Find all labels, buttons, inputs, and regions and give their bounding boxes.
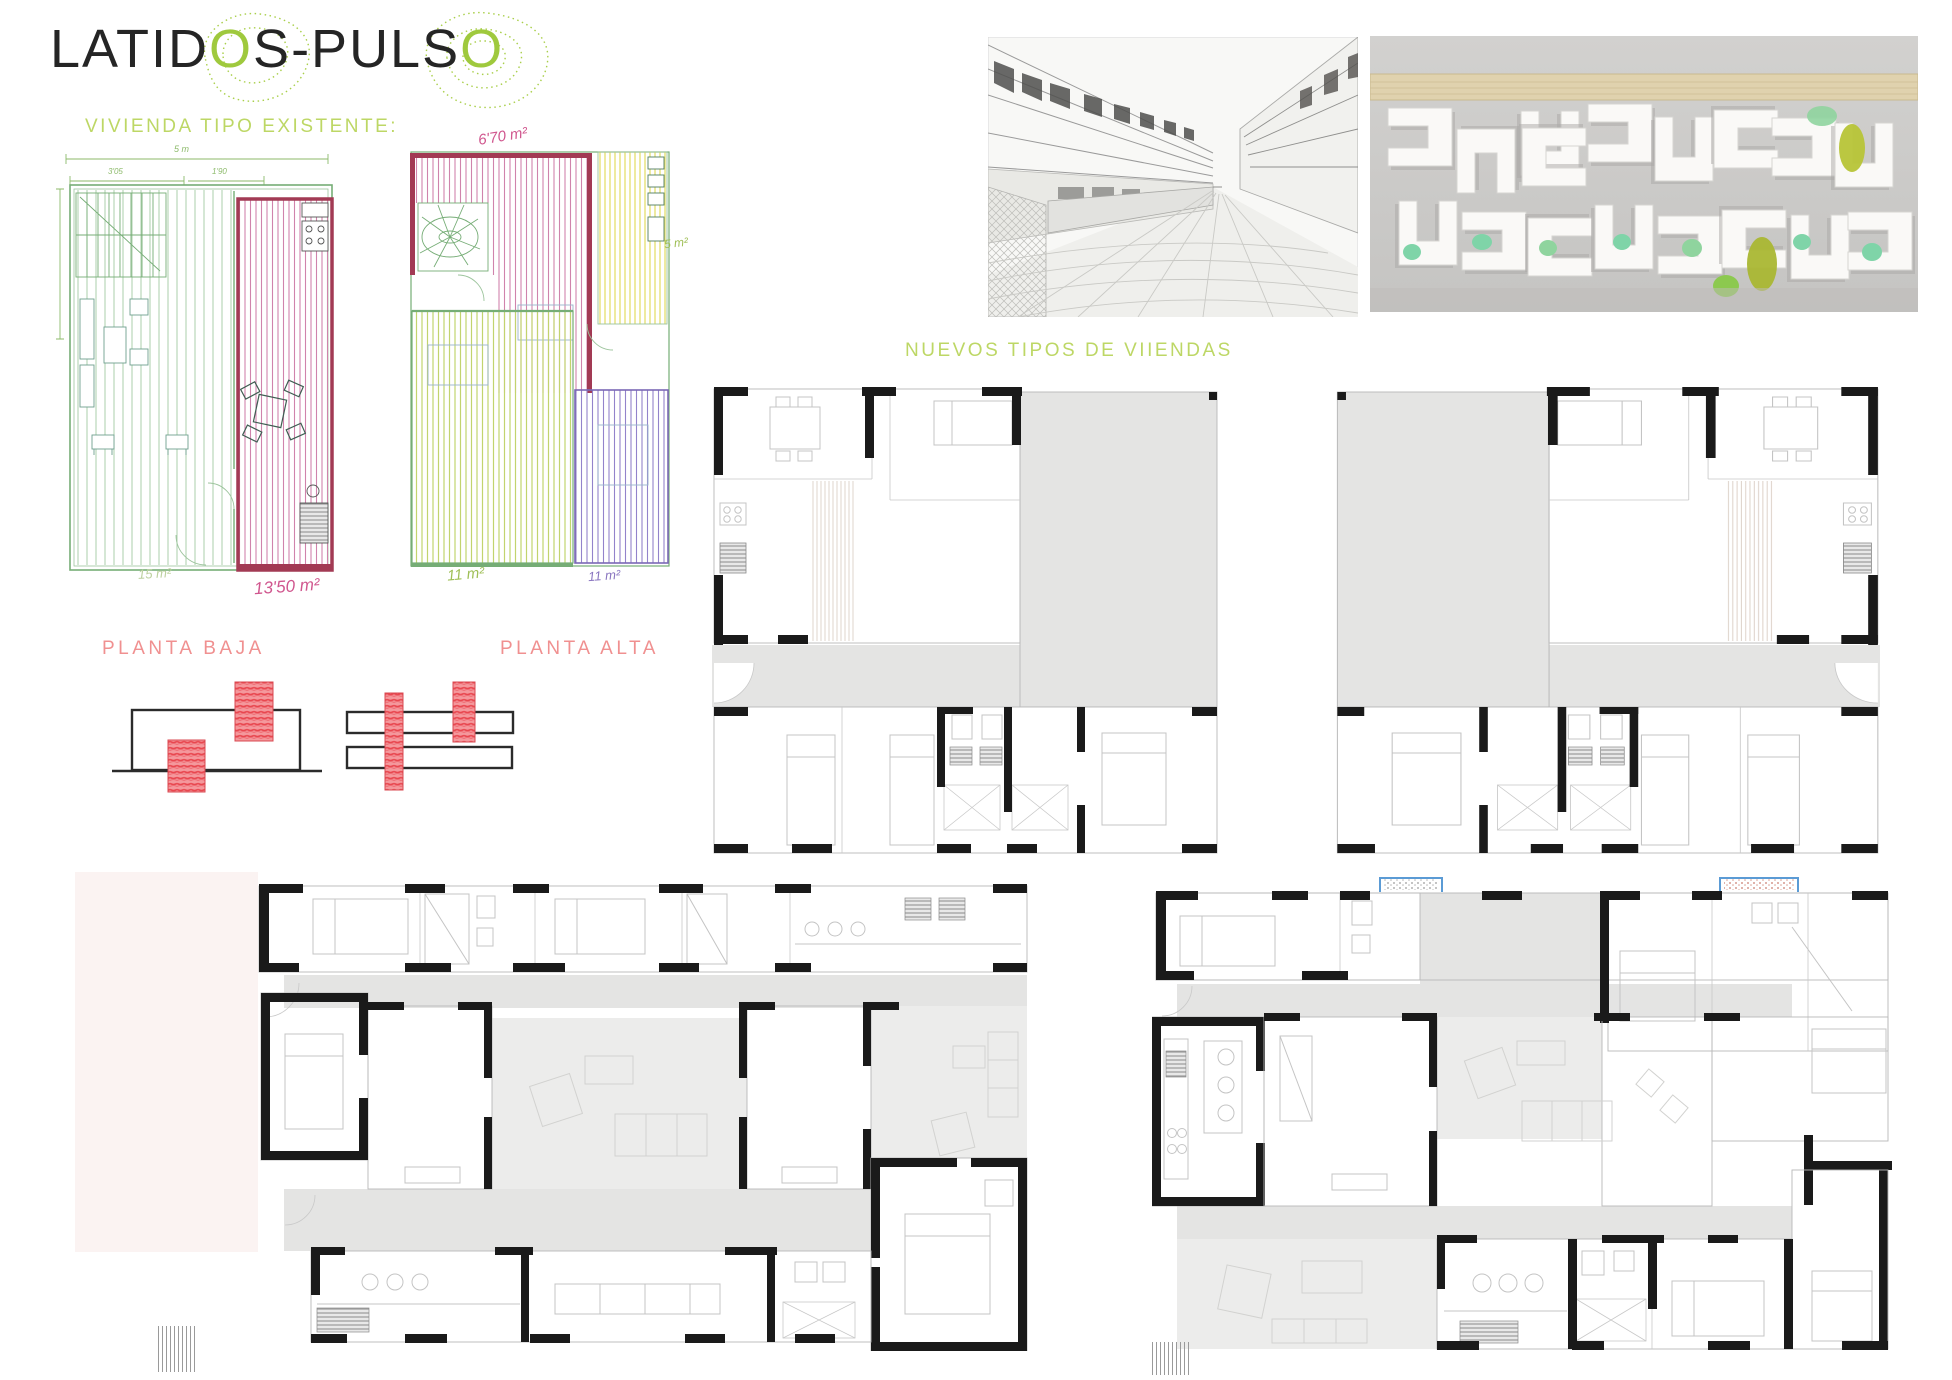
label-planta-alta: PLANTA ALTA <box>500 638 659 660</box>
purple-room-hatch <box>575 390 668 563</box>
sketch-planta-baja: 5 m 3'05 1'90 <box>56 139 338 601</box>
area-label-alta-room-purple: 11 m² <box>588 567 621 584</box>
bottom-right-room <box>871 1158 1027 1351</box>
kitchen-sketch <box>302 203 328 251</box>
grate-texture-left <box>158 1326 196 1372</box>
floor-plan-new-type-1 <box>712 385 1222 855</box>
top-strip-walls <box>259 884 1027 972</box>
area-label-alta-room-green: 11 m² <box>446 564 485 584</box>
wood-strip <box>1370 74 1918 100</box>
label-vivienda-tipo-existente: VIVIENDA TIPO EXISTENTE: <box>85 116 398 138</box>
area-label-baja-living: 15 m² <box>138 565 172 582</box>
title-letter-o-green: O <box>209 19 253 79</box>
floor-plan-large-2 <box>1152 870 1892 1351</box>
skylight-blue-1 <box>1380 878 1442 892</box>
presentation-board: LATIDOS-PULSO VIVIENDA TIPO EXISTENTE: 5… <box>0 0 1952 1380</box>
area-label-alta-bath: 5 m² <box>663 235 688 251</box>
dim-width-label: 5 m <box>174 144 190 154</box>
section-volume <box>132 710 300 770</box>
bottom-strip-walls <box>311 1247 835 1343</box>
dim-b-label: 1'90 <box>212 167 227 176</box>
title-part: S-PULS <box>253 19 460 79</box>
street-photo <box>988 37 1358 317</box>
kitchen-room <box>1152 1017 1265 1206</box>
lime-room-hatch <box>412 311 573 563</box>
label-planta-baja: PLANTA BAJA <box>102 638 265 660</box>
floor-plan-new-type-2 <box>1332 385 1880 855</box>
concept-diagram-section <box>100 668 530 803</box>
stair-sketch <box>418 203 488 271</box>
living-room-hatch <box>75 190 233 565</box>
left-bedroom <box>261 993 368 1160</box>
title-letter-o-green: O <box>460 19 504 79</box>
label-nuevos-tipos: NUEVOS TIPOS DE VIIENDAS <box>905 340 1233 362</box>
dim-a-label: 3'05 <box>108 167 123 176</box>
pink-wash-area <box>75 872 258 1252</box>
plan-bar-1 <box>347 712 513 733</box>
page-title: LATIDOS-PULSO <box>50 18 504 80</box>
sketch-planta-alta <box>398 125 680 583</box>
plan-bar-2 <box>347 747 512 768</box>
red-insert-blocks <box>168 682 475 792</box>
model-photo <box>1370 36 1918 312</box>
title-part: LATID <box>50 19 209 79</box>
floor-plan-large-1 <box>255 884 1033 1351</box>
skylight-blue-2 <box>1720 878 1798 892</box>
grate-texture-right <box>1152 1342 1192 1375</box>
